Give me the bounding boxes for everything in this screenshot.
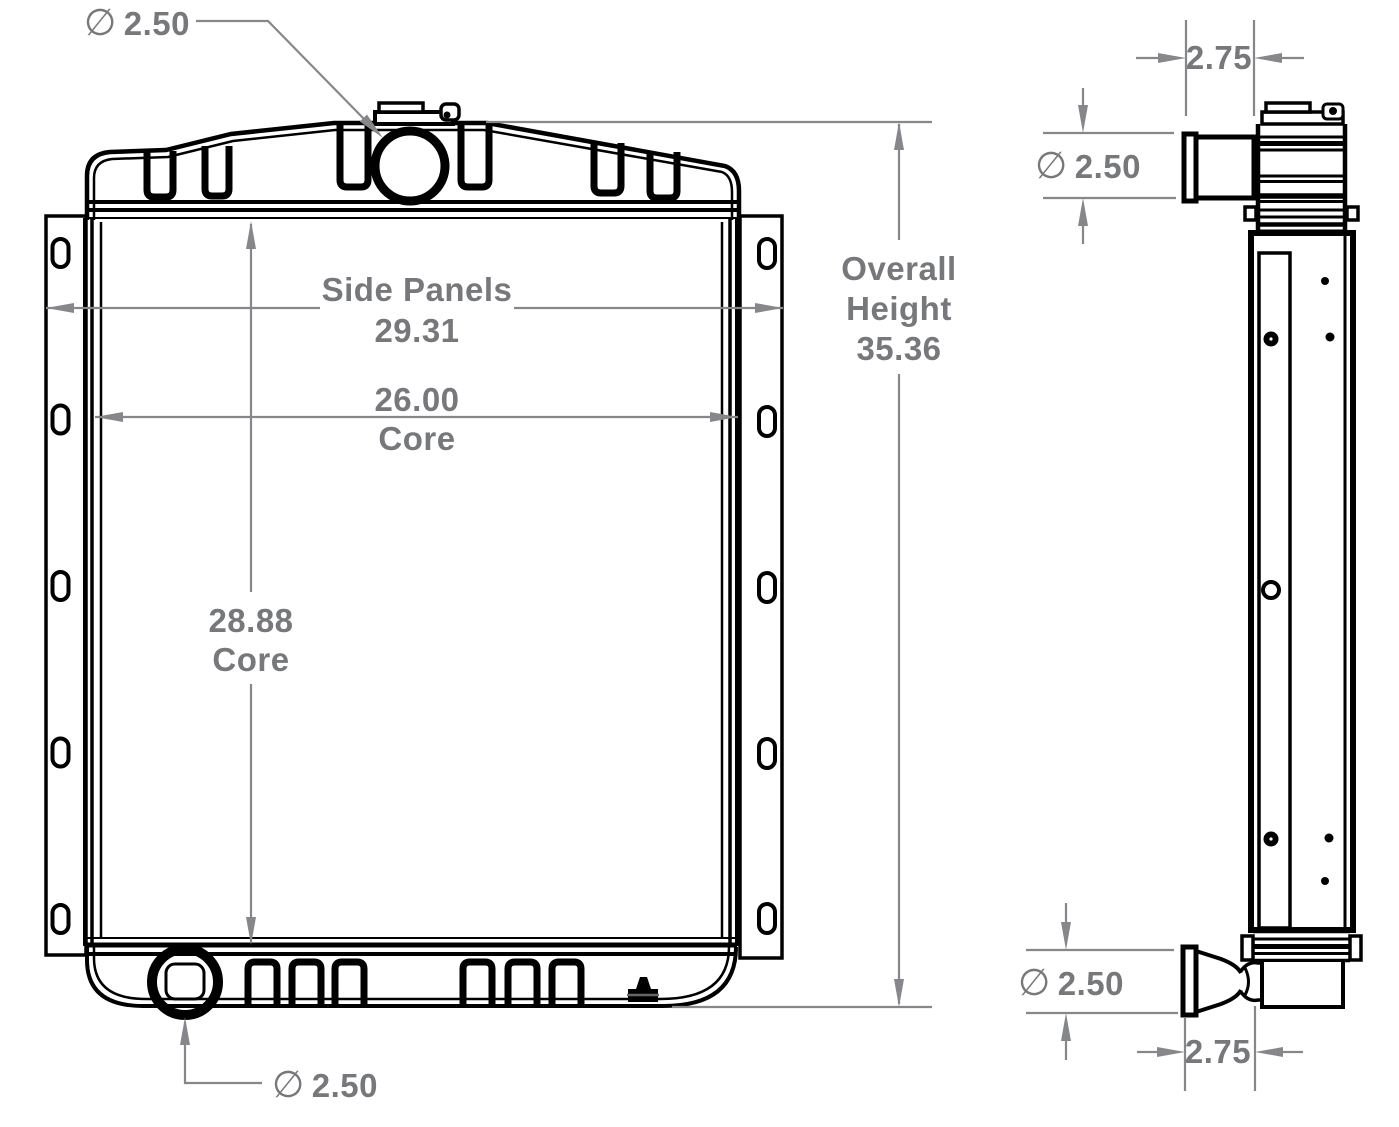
bracket-hole (759, 407, 775, 436)
side-panels-value: 29.31 (374, 312, 459, 349)
front-view (46, 103, 782, 1015)
rib-slot (461, 124, 489, 187)
rivet-hole (1325, 834, 1334, 843)
side-view (1183, 103, 1361, 1015)
inlet-pipe-body (1196, 137, 1254, 198)
bracket-hole (53, 905, 69, 933)
bracket-hole (53, 406, 69, 434)
side-top-port-dim: ∅2.50 (1035, 88, 1176, 244)
side-bottom-tank (1183, 932, 1361, 1016)
outlet-pipe-bottom (1196, 990, 1241, 1012)
overall-height-label-1: Overall (841, 250, 956, 287)
bracket-hole (759, 573, 775, 602)
dim-arrowhead (246, 917, 256, 945)
rib-slot (340, 124, 368, 187)
filler-cap-clip (441, 104, 459, 120)
dim-arrowhead (1078, 198, 1088, 226)
rib-slot (205, 146, 229, 196)
inlet-pipe-flange (1184, 134, 1196, 201)
rivet-center (1269, 337, 1272, 340)
outlet-bellows-line (1245, 968, 1249, 995)
dim-arrowhead (1255, 1047, 1283, 1057)
side-body (1251, 233, 1353, 930)
side-bottom-port-dim: ∅2.50 (1018, 903, 1178, 1060)
rivet-hole (1321, 877, 1329, 885)
bracket-hole (759, 739, 775, 768)
drain-plug (627, 977, 659, 1002)
filler-cap (375, 103, 459, 124)
bolt-hole (1263, 582, 1279, 598)
core-height-dim: 28.88 Core (208, 221, 293, 945)
left-mounting-bracket (46, 216, 86, 955)
dim-arrowhead (1078, 105, 1088, 133)
radiator-technical-drawing: ∅2.50 Side Panels 29.31 26.00 Core 28.88… (0, 0, 1399, 1127)
core-height-value: 28.88 (208, 602, 293, 639)
bracket-hole (53, 572, 69, 600)
side-panels-label: Side Panels (322, 271, 513, 308)
tank-band-lines (1256, 137, 1347, 231)
dim-arrowhead (1061, 1013, 1071, 1041)
bottom-port-diameter-dim: ∅2.50 (180, 1017, 378, 1105)
side-bottom-port-label: ∅2.50 (1018, 962, 1124, 1003)
inlet-pipe (1184, 134, 1254, 201)
rivet-hole (1326, 333, 1335, 342)
filler-cap-tab (379, 103, 423, 112)
overall-height-label-2: Height (846, 290, 952, 327)
overall-height-value: 35.36 (856, 330, 941, 367)
dim-arrowhead (894, 979, 904, 1007)
dim-arrowhead (1061, 922, 1071, 950)
side-panels-width-dim: Side Panels 29.31 (46, 271, 783, 349)
front-view-dimensions: ∅2.50 Side Panels 29.31 26.00 Core 28.88… (46, 2, 957, 1105)
outlet-pipe-top (1196, 951, 1241, 973)
dim-arrowhead (710, 412, 738, 422)
bottom-band-lines (1253, 932, 1350, 961)
drawing-svg: ∅2.50 Side Panels 29.31 26.00 Core 28.88… (0, 0, 1399, 1127)
bracket-hole (53, 739, 69, 767)
core-height-label: Core (212, 641, 289, 678)
rivet-center (1269, 837, 1272, 840)
leader-arrowhead (180, 1017, 190, 1045)
filler-cap-tab (1266, 103, 1310, 112)
outlet-opening-hole (166, 964, 204, 999)
side-top-depth-value: 2.75 (1186, 39, 1252, 76)
tank-tab (1347, 207, 1358, 220)
tank-tab (1350, 936, 1361, 960)
dim-arrowhead (95, 412, 123, 422)
side-bottom-depth-value: 2.75 (1185, 1033, 1251, 1070)
lower-tank-outline (1262, 962, 1343, 1007)
tank-tab (1242, 936, 1253, 960)
dim-arrowhead (894, 122, 904, 150)
dim-arrowhead (1158, 53, 1186, 63)
front-top-port-label: ∅2.50 (84, 2, 190, 43)
outlet-pipe-flange (1183, 947, 1196, 1015)
dim-arrowhead (1254, 53, 1282, 63)
right-mounting-bracket (740, 216, 782, 958)
filler-cap-rivet (1329, 107, 1337, 115)
bracket-hole (759, 904, 775, 933)
tank-tab (1245, 207, 1256, 220)
top-tank-outline (87, 123, 739, 220)
bracket-hole (53, 239, 69, 267)
drain-plug-body (628, 977, 658, 1002)
side-top-port-label: ∅2.50 (1035, 145, 1141, 186)
side-top-tank (1245, 103, 1358, 233)
dim-arrowhead (246, 221, 256, 249)
filler-cap-rivet (444, 112, 451, 119)
front-bottom-port-label: ∅2.50 (272, 1064, 378, 1105)
dim-arrowhead (1157, 1047, 1185, 1057)
core-width-dim: 26.00 Core (95, 381, 738, 457)
bracket-hole (759, 239, 775, 268)
top-port-diameter-dim: ∅2.50 (84, 2, 383, 138)
leader-line (196, 21, 365, 120)
core-width-value: 26.00 (374, 381, 459, 418)
bottom-depth-dim: 2.75 (1137, 1006, 1303, 1091)
core-width-label: Core (378, 420, 455, 457)
filler-neck-opening (375, 131, 445, 201)
leader-line (185, 1022, 262, 1083)
rivet-hole (1321, 277, 1329, 285)
